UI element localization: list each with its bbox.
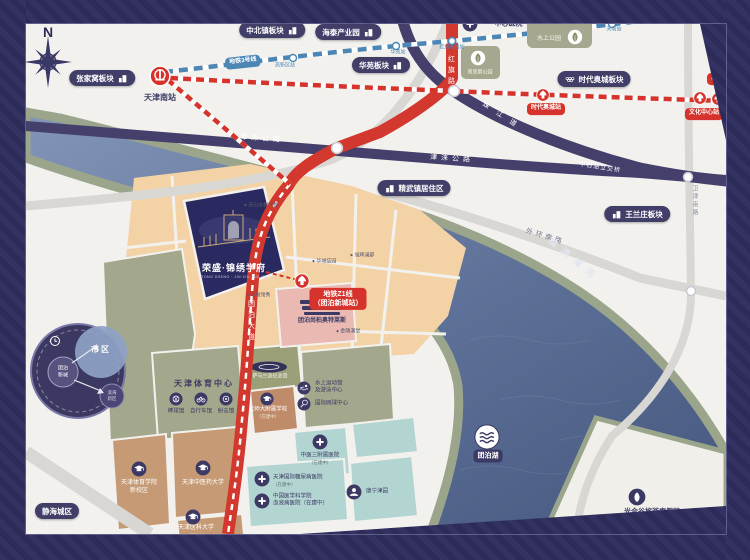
venue-cycling: 自行车馆 [190, 409, 212, 415]
label-overlay: 张家窝板块中北镇板块海泰产业园华苑板块时代奥城板块精武镇居住区王兰庄板块静海城区… [0, 0, 750, 560]
univ-zhongyiyao-icon [195, 460, 211, 476]
road-hongqi: 红旗路 [448, 55, 455, 88]
project-subtitle: RONG SHENG · JIN XIU XUE FU [201, 275, 267, 279]
venue-aquatic-1: 水上运动馆 [315, 381, 343, 387]
univ-tiyu-1: 天津体育学院 [121, 480, 157, 486]
inset-binhai-2: 新区 [108, 397, 117, 402]
community-5: ● 金隅满堂 [336, 330, 360, 335]
tuanbo-lake-icon [474, 424, 500, 450]
community-3: ● 旭辉澜郡 [350, 254, 374, 259]
road-weijin-south: 卫津南路 [691, 185, 697, 217]
shuishang-park-icon [567, 29, 583, 45]
venue-baseball: 棒球馆 [168, 409, 185, 415]
pill-zhangjiawo-label: 张家窝板块 [76, 73, 114, 84]
inset-shiqu: 市区 [91, 346, 111, 354]
community-2: ● 华城佶园 [312, 260, 336, 265]
road-jinlai-2: 津涞公路 [430, 154, 474, 164]
hospital-tangniaobing-note: （在建中） [273, 483, 296, 488]
building-icon [363, 27, 374, 38]
park-nancuiping: 南翠屏公园 [467, 71, 492, 76]
pill-jinghai-chengqu-label: 静海城区 [42, 506, 72, 517]
road-jinlai-1: 津涞公路 [240, 134, 284, 144]
inset-tuanbo-1: 团泊 [58, 367, 68, 372]
hospital-xueyebing-1: 中国医学科学院 [273, 494, 312, 500]
univ-yike: 天津医科大学 [178, 525, 214, 531]
inset-binhai-1: 滨海 [108, 391, 117, 396]
badge-shidai-aocheng-station-line: 时代奥城站 [531, 105, 561, 113]
park-shuishang: 水上公园 [537, 36, 561, 42]
badge-z1-line-line: （团泊新城站） [314, 299, 363, 308]
frame-left [0, 0, 26, 560]
pill-jinghai-chengqu: 静海城区 [35, 503, 79, 519]
univ-tiyu-icon [131, 461, 147, 477]
pill-zhongbeizhen-label: 中北镇板块 [246, 25, 284, 36]
badge-tuanbo-lake-line: 团泊湖 [478, 451, 499, 460]
zhongyi3-hospital-icon [312, 434, 328, 450]
outlet-label: 团泊尚柏奥特莱斯 [298, 318, 346, 324]
badge-line3-line: 地铁3号线 [229, 57, 257, 68]
pill-jingwuzhen-label: 精武镇居住区 [399, 183, 444, 194]
station-hongqinanlu: 红旗南路站 [439, 46, 464, 51]
tangniaobing-hospital-icon [254, 471, 270, 487]
school-beishida-icon [260, 392, 274, 406]
venue-shooting: 射击馆 [218, 409, 235, 415]
pill-wanglanzhuang: 王兰庄板块 [604, 206, 670, 222]
pill-jingwuzhen: 精武镇居住区 [378, 180, 451, 196]
venue-samaranch: 萨马兰奇纪念馆 [252, 375, 287, 380]
station-gaoxinqu: 高新区站 [275, 64, 295, 69]
station-tianta: 天塔站 [606, 28, 621, 33]
pill-huayuan-label: 华苑板块 [359, 60, 389, 71]
badge-tuanbo-lake: 团泊湖 [474, 449, 503, 462]
badge-wenhua-zhongxin-station-line: 文化中心站 [689, 110, 719, 118]
badge-wenhua-zhongxin-station: 文化中心站 [685, 108, 723, 120]
badge-z1-line-line: 地铁Z1线 [314, 290, 363, 299]
badge-z1-line: 地铁Z1线（团泊新城站） [310, 288, 367, 310]
station-huayuan: 华苑站 [390, 51, 405, 56]
hospital-zhongyi-3-note: （在建中） [309, 461, 332, 466]
project-name: 荣盛·锦绣学府 [201, 261, 267, 274]
univ-zhongyiyao: 天津中医药大学 [182, 480, 224, 486]
pill-zhongbeizhen: 中北镇板块 [239, 22, 305, 38]
river-duliujian: 独流减河 [547, 236, 602, 284]
baseball-icon [169, 392, 183, 406]
school-beishida-note: （在建中） [257, 415, 280, 420]
hospital-zhongyi-3: 中医三附属医院 [301, 453, 340, 459]
hospital-tangniaobing: 天津国际糖尿病医院 [273, 475, 323, 481]
tianjin-south-railway-icon [149, 65, 171, 87]
aocheng-station-icon [536, 88, 550, 102]
pill-haitai-label: 海泰产业园 [322, 27, 360, 38]
pill-wanglanzhuang-label: 王兰庄板块 [625, 209, 663, 220]
shooting-icon [219, 392, 233, 406]
bridge-zhongshiyou: 中石油立交桥 [579, 162, 621, 174]
hospital-xueyebing-2: 血液病医院（在建中） [273, 501, 328, 507]
cycling-icon [194, 392, 208, 406]
compass-n: N [43, 25, 53, 39]
tuanbo-area-map: 荣盛·锦绣学府 RONG SHENG · JIN XIU XUE FU 张家窝板… [0, 0, 750, 560]
frame-top [0, 0, 750, 24]
road-tuanbo-dadao: 团泊大道 [248, 300, 255, 344]
guanghegu-icon [628, 488, 646, 506]
badge-shidai-aocheng-station: 时代奥城站 [527, 103, 565, 115]
xueyebing-hospital-icon [254, 493, 270, 509]
nancuiping-park-icon [470, 50, 486, 66]
univ-tiyu-2: 新校区 [130, 488, 148, 494]
frame-bottom [0, 534, 750, 560]
building-icon [392, 60, 403, 71]
building-icon [385, 183, 396, 194]
school-beishida: 北师大附属学校 [249, 407, 288, 413]
tennis-icon [297, 397, 311, 411]
z1-tuanbo-station-icon [294, 273, 310, 289]
kangning-icon [346, 484, 362, 500]
venue-tennis: 国际网球中心 [315, 401, 348, 407]
pill-haitai: 海泰产业园 [315, 24, 381, 40]
building-icon [117, 73, 128, 84]
community-1: ● 天山水榭花都 [244, 204, 278, 209]
wenhua-station-icon [693, 91, 707, 105]
kangning-jinyuan: 康宁津园 [366, 489, 388, 495]
sports-center-title: 天津体育中心 [174, 380, 234, 388]
pill-shidai-aocheng-label: 时代奥城板块 [579, 74, 624, 85]
community-4: ● 华城领秀 [246, 294, 270, 299]
tianjin-south-station: 天津南站 [144, 94, 176, 102]
venue-aquatic-2: 及游泳中心 [315, 388, 343, 394]
rings-icon [565, 74, 576, 85]
pill-shidai-aocheng: 时代奥城板块 [558, 71, 631, 87]
project-label: 荣盛·锦绣学府 RONG SHENG · JIN XIU XUE FU [201, 261, 267, 279]
road-zhujiang: 珠江道 [481, 101, 525, 133]
badge-line3: 地铁3号线 [225, 54, 261, 69]
univ-yike-icon [185, 509, 201, 525]
building-icon [611, 209, 622, 220]
aquatic-icon [297, 381, 311, 395]
building-icon [287, 25, 298, 36]
pill-zhangjiawo: 张家窝板块 [69, 70, 135, 86]
pill-huayuan: 华苑板块 [352, 57, 410, 73]
frame-right [726, 0, 750, 560]
inset-tuanbo-2: 新城 [58, 374, 68, 379]
